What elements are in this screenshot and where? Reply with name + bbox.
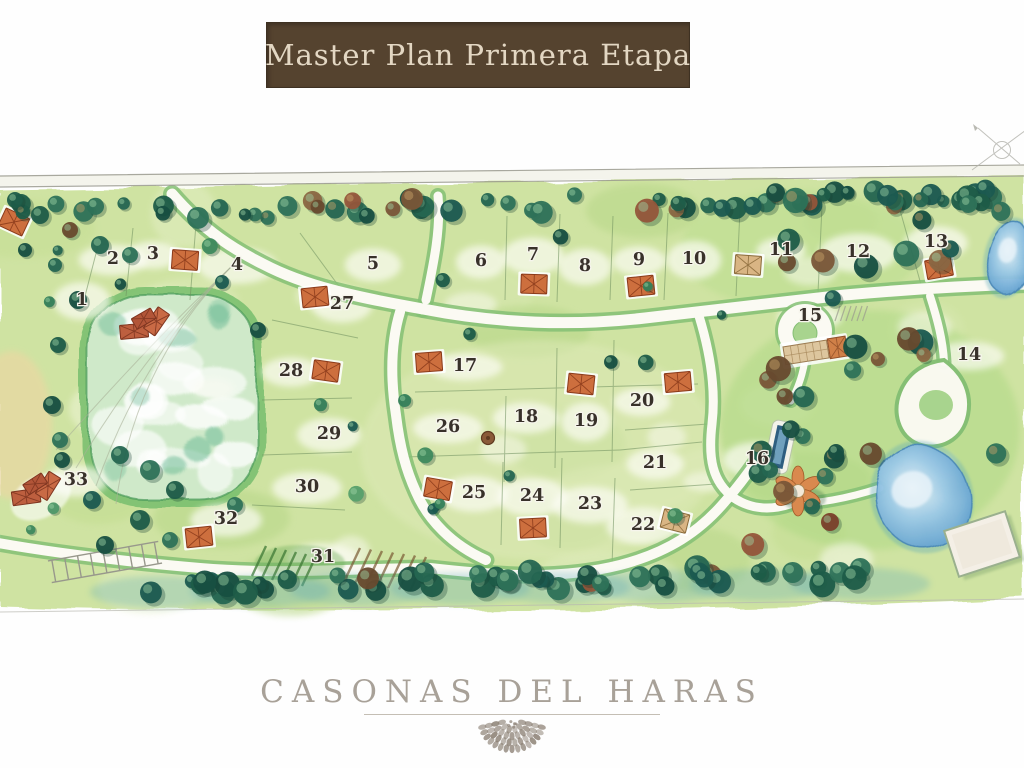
tree-icon xyxy=(500,195,515,210)
tree-icon xyxy=(401,188,423,210)
tree-icon xyxy=(860,443,882,465)
lot-number-label: 28 xyxy=(279,361,303,381)
tree-icon xyxy=(26,525,36,535)
tree-icon xyxy=(233,580,258,605)
lot-number-label: 1 xyxy=(76,290,88,310)
tree-icon xyxy=(87,198,104,215)
tree-icon xyxy=(825,290,841,306)
lot-number-label: 18 xyxy=(514,407,538,427)
tree-icon xyxy=(277,196,297,216)
lot-number-label: 23 xyxy=(578,494,602,514)
tree-icon xyxy=(215,275,229,289)
tree-icon xyxy=(50,337,66,353)
house-icon xyxy=(661,369,695,396)
tree-icon xyxy=(193,571,216,594)
tree-icon xyxy=(43,396,61,414)
lot-number-label: 6 xyxy=(475,251,487,271)
tree-icon xyxy=(916,348,930,362)
tree-icon xyxy=(348,486,364,502)
brand-emblem-icon xyxy=(454,716,570,762)
tree-icon xyxy=(843,335,867,359)
lot-number-label: 3 xyxy=(147,244,159,264)
house-icon xyxy=(308,357,343,385)
lot-number-label: 19 xyxy=(574,411,598,431)
tree-icon xyxy=(783,188,808,213)
tree-icon xyxy=(592,575,609,592)
lot-number-label: 32 xyxy=(214,509,238,529)
tree-icon xyxy=(414,562,434,582)
lot-number-label: 30 xyxy=(295,477,319,497)
house-icon xyxy=(168,247,202,273)
lot-number-label: 29 xyxy=(317,424,341,444)
tree-icon xyxy=(162,532,178,548)
tree-icon xyxy=(44,296,55,307)
tree-icon xyxy=(311,200,325,214)
lot-number-label: 24 xyxy=(520,486,544,506)
tree-icon xyxy=(766,356,791,381)
tree-icon xyxy=(48,258,62,272)
tree-icon xyxy=(202,238,218,254)
tree-icon xyxy=(893,241,919,267)
lot-number-label: 11 xyxy=(769,240,793,260)
site-plan-map: 1234567891011121314151617181920212223242… xyxy=(0,0,1024,768)
tree-icon xyxy=(83,491,101,509)
tree-icon xyxy=(54,452,70,468)
house-icon xyxy=(516,515,549,541)
house-icon xyxy=(518,271,551,296)
house-icon xyxy=(298,283,332,310)
tree-icon xyxy=(842,565,867,590)
tree-icon xyxy=(777,388,793,404)
lot-number-label: 15 xyxy=(798,306,822,326)
tree-icon xyxy=(793,386,814,407)
tree-icon xyxy=(844,361,861,378)
tree-icon xyxy=(841,186,855,200)
tree-icon xyxy=(877,185,898,206)
tree-icon xyxy=(122,247,138,263)
tree-icon xyxy=(741,533,764,556)
tree-icon xyxy=(553,229,568,244)
tree-icon xyxy=(695,569,714,588)
tree-icon xyxy=(655,576,674,595)
tree-icon xyxy=(986,443,1006,463)
tree-icon xyxy=(713,199,730,216)
tree-icon xyxy=(187,207,209,229)
tree-icon xyxy=(436,273,450,287)
tree-icon xyxy=(671,196,686,211)
emblem-leaf xyxy=(509,744,514,752)
tree-icon xyxy=(435,499,445,509)
tree-icon xyxy=(211,199,229,217)
tree-icon xyxy=(897,327,920,350)
tree-icon xyxy=(48,502,60,514)
lot-number-label: 22 xyxy=(631,515,655,535)
tree-icon xyxy=(959,195,977,213)
tree-icon xyxy=(329,568,345,584)
house-icon xyxy=(564,370,598,397)
tree-icon xyxy=(166,481,184,499)
lot-number-label: 31 xyxy=(311,547,335,567)
tree-icon xyxy=(239,209,251,221)
brand-wordmark: CASONAS DEL HARAS xyxy=(0,676,1024,709)
lot-number-label: 14 xyxy=(957,345,981,365)
tree-icon xyxy=(567,187,582,202)
lot-number-label: 20 xyxy=(630,391,654,411)
tree-icon xyxy=(817,468,834,485)
lot-number-label: 10 xyxy=(682,249,706,269)
lot-number-label: 25 xyxy=(462,483,486,503)
tree-icon xyxy=(782,420,800,438)
tree-icon xyxy=(314,398,327,411)
tree-icon xyxy=(643,281,653,291)
tree-icon xyxy=(325,199,344,218)
page: Master Plan Primera Etapa 12345678910111… xyxy=(0,0,1024,768)
tree-icon xyxy=(250,322,266,338)
tree-icon xyxy=(773,481,794,502)
tree-icon xyxy=(348,421,358,431)
tree-icon xyxy=(359,208,375,224)
tree-icon xyxy=(440,199,462,221)
tree-icon xyxy=(117,197,130,210)
tree-icon xyxy=(278,570,297,589)
lot-number-label: 2 xyxy=(107,249,119,269)
tree-icon xyxy=(7,192,23,208)
lot-number-label: 16 xyxy=(745,449,769,469)
tree-icon xyxy=(871,352,885,366)
compass-icon xyxy=(972,124,1024,170)
tree-icon xyxy=(828,444,844,460)
tree-icon xyxy=(357,567,379,589)
house-icon xyxy=(182,523,216,550)
lot-number-label: 5 xyxy=(367,254,379,274)
tree-icon xyxy=(804,498,820,514)
lot-number-label: 8 xyxy=(579,256,591,276)
tree-icon xyxy=(913,192,928,207)
tree-icon xyxy=(629,566,650,587)
tree-icon xyxy=(481,193,494,206)
house-icon xyxy=(731,252,765,278)
tree-icon xyxy=(635,199,659,223)
tree-icon xyxy=(638,355,654,371)
lot-number-label: 13 xyxy=(924,232,948,252)
lot-number-label: 26 xyxy=(436,417,460,437)
tree-icon xyxy=(497,569,519,591)
tree-icon xyxy=(743,197,761,215)
tree-icon xyxy=(48,196,65,213)
tree-icon xyxy=(385,201,400,216)
lot-number-label: 9 xyxy=(633,250,645,270)
tree-icon xyxy=(62,222,78,238)
tree-icon xyxy=(782,562,803,583)
lot-number-label: 17 xyxy=(453,356,477,376)
tree-icon xyxy=(751,564,767,580)
lot-number-label: 27 xyxy=(330,294,354,314)
tree-icon xyxy=(912,210,931,229)
tree-icon xyxy=(31,206,49,224)
tree-icon xyxy=(18,243,32,257)
tree-icon xyxy=(115,278,126,289)
brand-divider xyxy=(364,714,660,715)
brand-block: CASONAS DEL HARAS xyxy=(0,676,1024,762)
tree-icon xyxy=(96,536,114,554)
house-icon xyxy=(412,349,446,375)
tree-icon xyxy=(604,355,618,369)
tree-icon xyxy=(469,565,487,583)
tree-icon xyxy=(53,245,63,255)
tree-icon xyxy=(817,188,831,202)
tree-icon xyxy=(344,192,361,209)
lot-number-label: 12 xyxy=(846,242,870,262)
tree-icon xyxy=(811,249,835,273)
tree-icon xyxy=(530,201,553,224)
tree-icon xyxy=(504,470,515,481)
tree-icon xyxy=(111,446,129,464)
tree-icon xyxy=(417,447,433,463)
tree-icon xyxy=(821,513,839,531)
tree-icon xyxy=(398,394,411,407)
tree-icon xyxy=(518,560,542,584)
tree-icon xyxy=(52,432,68,448)
lot-number-label: 21 xyxy=(643,453,667,473)
tree-icon xyxy=(717,310,726,319)
lot-number-label: 7 xyxy=(527,245,539,265)
tree-icon xyxy=(463,328,476,341)
lot-number-label: 4 xyxy=(231,255,243,275)
tree-icon xyxy=(766,183,785,202)
tree-icon xyxy=(156,206,171,221)
tree-icon xyxy=(140,581,162,603)
tree-icon xyxy=(130,510,150,530)
lot-number-label: 33 xyxy=(64,470,88,490)
tree-icon xyxy=(991,202,1010,221)
tree-icon xyxy=(667,508,682,523)
tree-icon xyxy=(140,460,160,480)
